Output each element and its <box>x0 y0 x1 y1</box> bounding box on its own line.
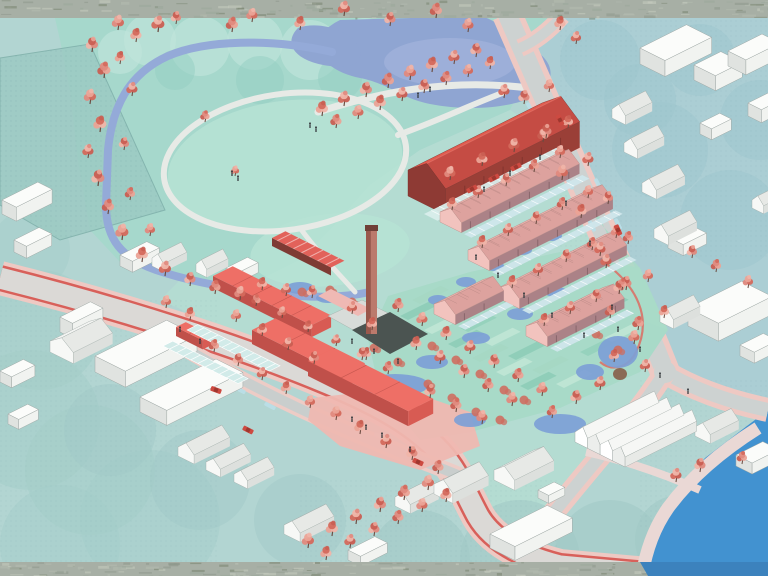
garden-pond <box>462 332 490 344</box>
ground-regions <box>0 0 768 576</box>
brick-chimney <box>365 225 378 334</box>
masterplan-axonometric-illustration <box>0 0 768 576</box>
river-overlay <box>640 562 768 576</box>
garden-rock <box>613 368 627 380</box>
masterplan-screenshot <box>0 0 768 576</box>
